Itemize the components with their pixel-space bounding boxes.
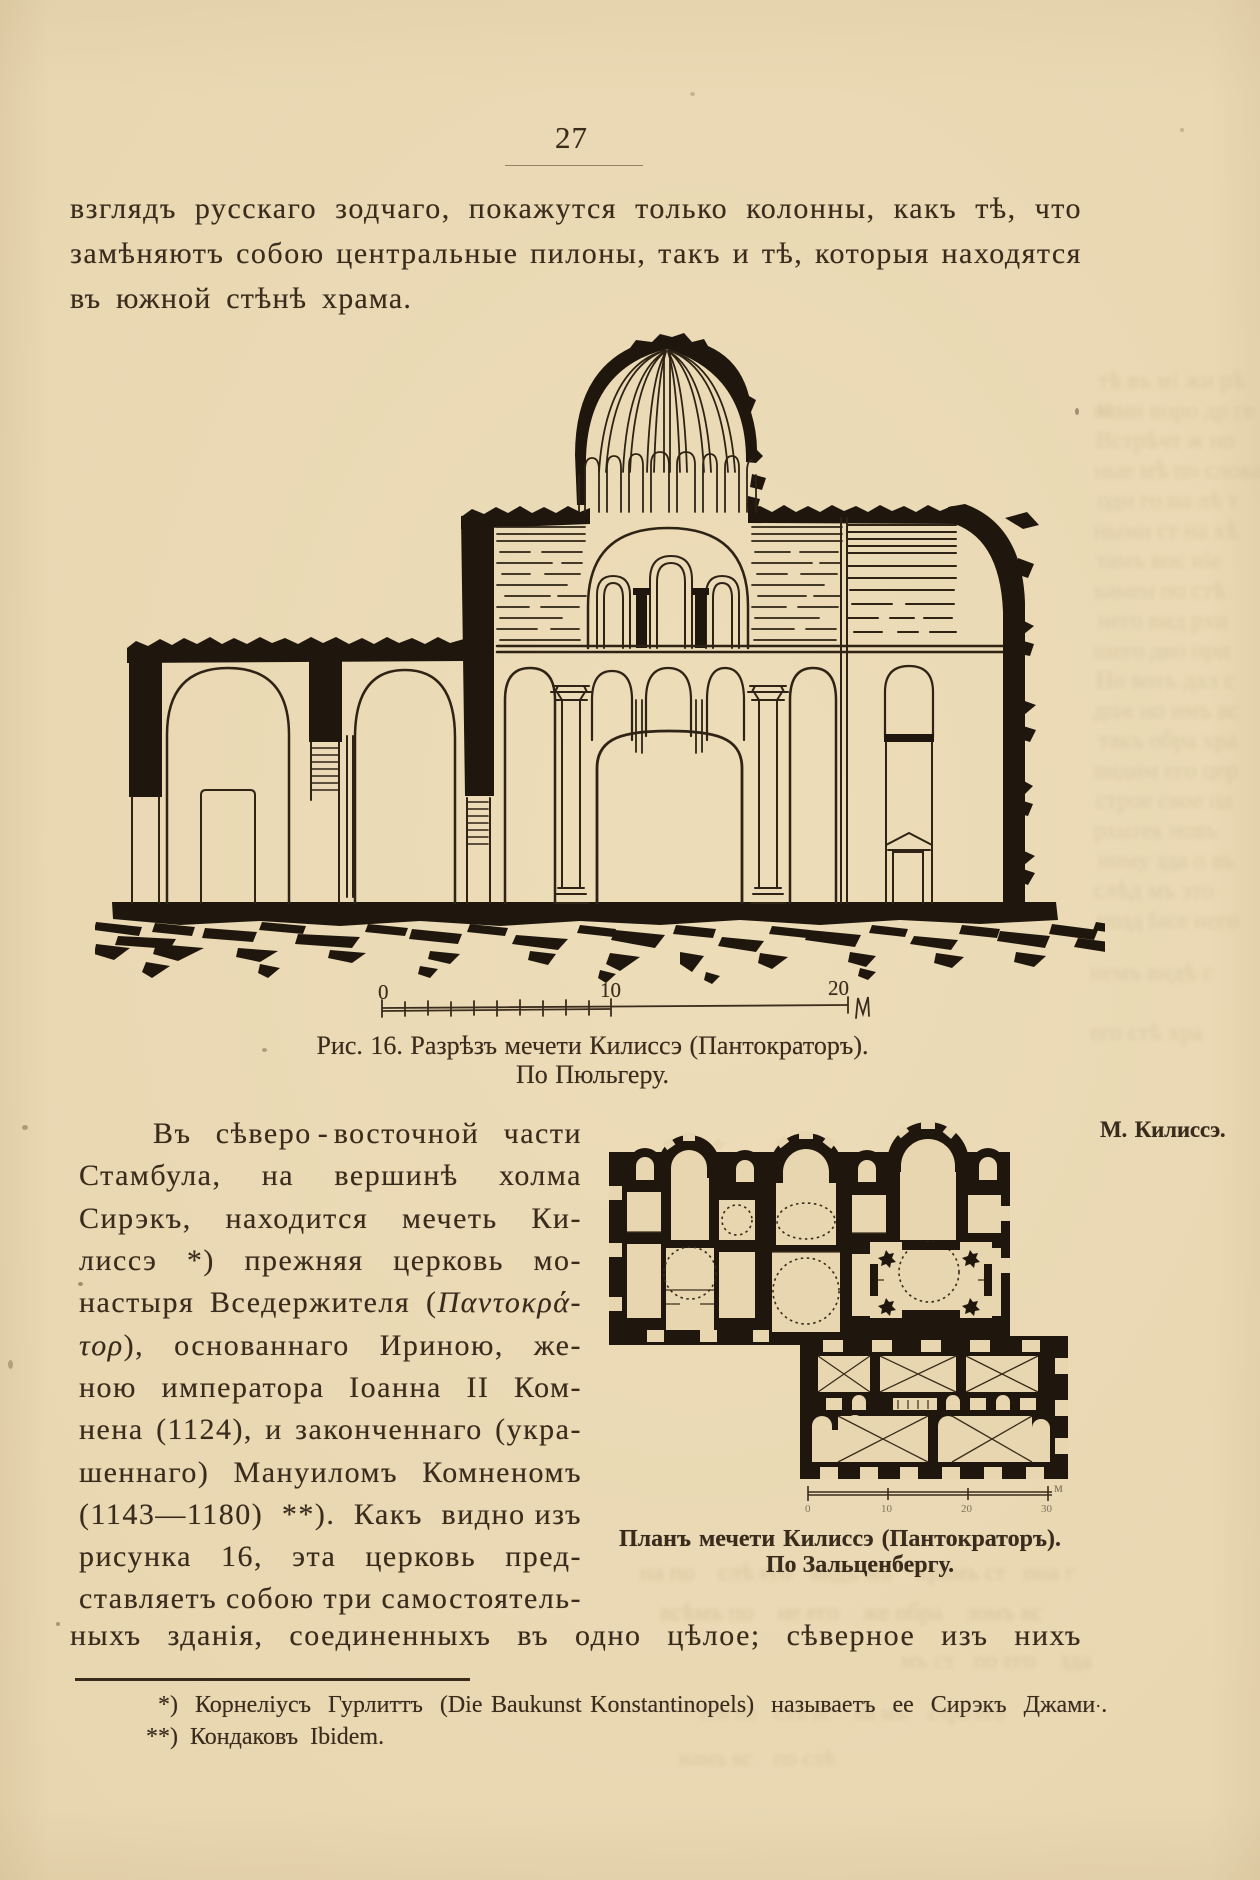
svg-text:30: 30 bbox=[1041, 1503, 1053, 1515]
svg-text:м: м bbox=[1054, 1481, 1063, 1496]
svg-text:20: 20 bbox=[961, 1503, 973, 1515]
svg-text:20: 20 bbox=[828, 976, 849, 1000]
svg-text:0: 0 bbox=[805, 1503, 811, 1515]
svg-text:0: 0 bbox=[378, 980, 389, 1004]
svg-text:10: 10 bbox=[881, 1503, 893, 1515]
